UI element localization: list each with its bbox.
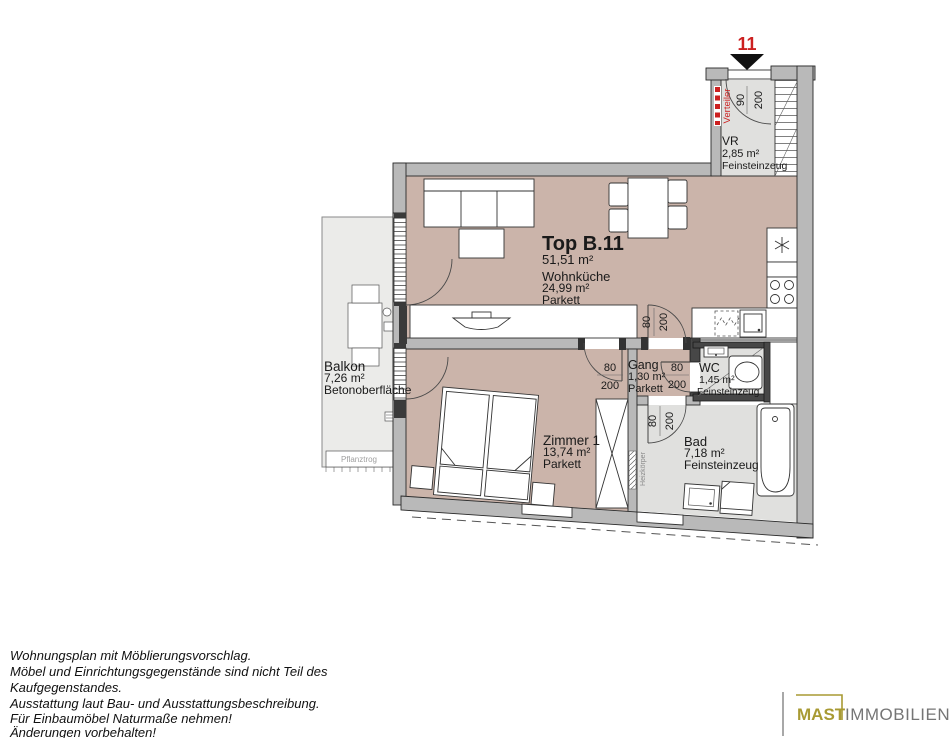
sofa [424,179,534,227]
floorplan-page: Pflanztrog [0,0,950,738]
wc-area: 1,45 m² [699,374,735,386]
installation-shaft [770,342,797,404]
heizkoerper-label: Heizkörper [640,451,647,486]
floorplan-drawing: Pflanztrog [0,0,950,738]
entrance-door-height: 200 [753,91,765,109]
nightstand-right [531,482,555,506]
wall-wc-shaft [764,342,770,402]
logo-brand: MAST [797,705,846,724]
wg-door-width: 80 [641,316,653,328]
door-leaf-closed [399,306,407,344]
unit-number: 11 [737,34,756,54]
bad-flooring: Feinsteinzeug [684,458,759,472]
mattress-right [487,395,536,471]
wg-door-height: 200 [658,313,670,331]
wall-pier [394,398,406,418]
nightstand-left [410,466,434,490]
door-jamb [619,337,626,350]
balcony-table [348,303,382,348]
wall-left-upper [393,163,406,213]
kitchen-cabinet [767,262,797,277]
washbasin [683,484,720,511]
company-logo: MAST IMMOBILIEN [796,695,950,724]
entrance-door-width: 90 [735,94,747,106]
gang-name: Gang [628,358,659,372]
washing-machine [720,481,754,515]
coffee-table [459,229,504,258]
door-jamb [641,337,648,350]
entrance-arrow-icon [730,54,764,70]
zimmer1-wardrobe [596,399,628,508]
pillow-right [485,470,530,500]
disclaimer-line: Für Einbaumöbel Naturmaße nehmen! [10,711,232,726]
balkon-flooring: Betonoberfläche [324,383,412,397]
gang-flooring: Parkett [628,383,663,395]
wc-name: WC [699,361,720,375]
balcony-chair-top [352,285,379,303]
planter-label: Pflanztrog [341,455,377,464]
bad-door-width: 80 [647,415,659,427]
balcony-railing-ticks [326,467,390,472]
wall-right [797,66,813,538]
pillow-left [438,466,483,496]
balcony-door-window-1 [394,218,406,302]
disclaimer-line: Kaufgegenstandes. [10,680,122,695]
door-jamb [683,337,690,350]
cooktop [767,277,797,308]
vr-flooring: Feinsteinzeug [722,160,788,172]
wall-mid-a [403,338,584,349]
wall-gang-bad-a [637,396,648,405]
balcony-outlet [384,322,393,331]
kitchen-sink [740,310,766,337]
zimmer1-door-width: 80 [604,362,616,374]
vr-area: 2,85 m² [722,148,760,160]
bad-door-height: 200 [664,412,676,430]
verteiler-label: Verteiler [722,89,733,124]
disclaimer-line: Möbel und Einrichtungsgegenstände sind n… [10,664,328,679]
bathtub [757,404,794,496]
vr-name: VR [722,134,739,148]
apartment-total-area: 51,51 m² [542,252,594,267]
zimmer1-door-height: 200 [601,380,619,392]
verteiler-annotation: Verteiler [714,86,733,126]
disclaimer-line: Änderungen vorbehalten! [9,725,156,738]
wall-top [396,163,712,176]
entrance-door-leaf [728,70,771,79]
bad-radiator [629,451,636,489]
wohnkueche-flooring: Parkett [542,293,581,307]
wc-flooring: Feinsteinzeug [697,387,759,398]
wc-door-height: 200 [668,379,686,391]
zimmer1-flooring: Parkett [543,457,582,471]
wall-entry-jamb [706,68,728,80]
balcony-drain [383,308,391,316]
sideboard-tv [410,305,637,338]
disclaimer-line: Ausstattung laut Bau- und Ausstattungsbe… [9,696,320,711]
disclaimer-line: Wohnungsplan mit Möblierungsvorschlag. [10,648,251,663]
gang-area: 1,30 m² [628,371,666,383]
wc-hand-basin [704,346,728,357]
logo-suffix: IMMOBILIEN [845,705,950,724]
footer: Wohnungsplan mit Möblierungsvorschlag. M… [9,648,950,738]
wc-door-width: 80 [671,362,683,374]
